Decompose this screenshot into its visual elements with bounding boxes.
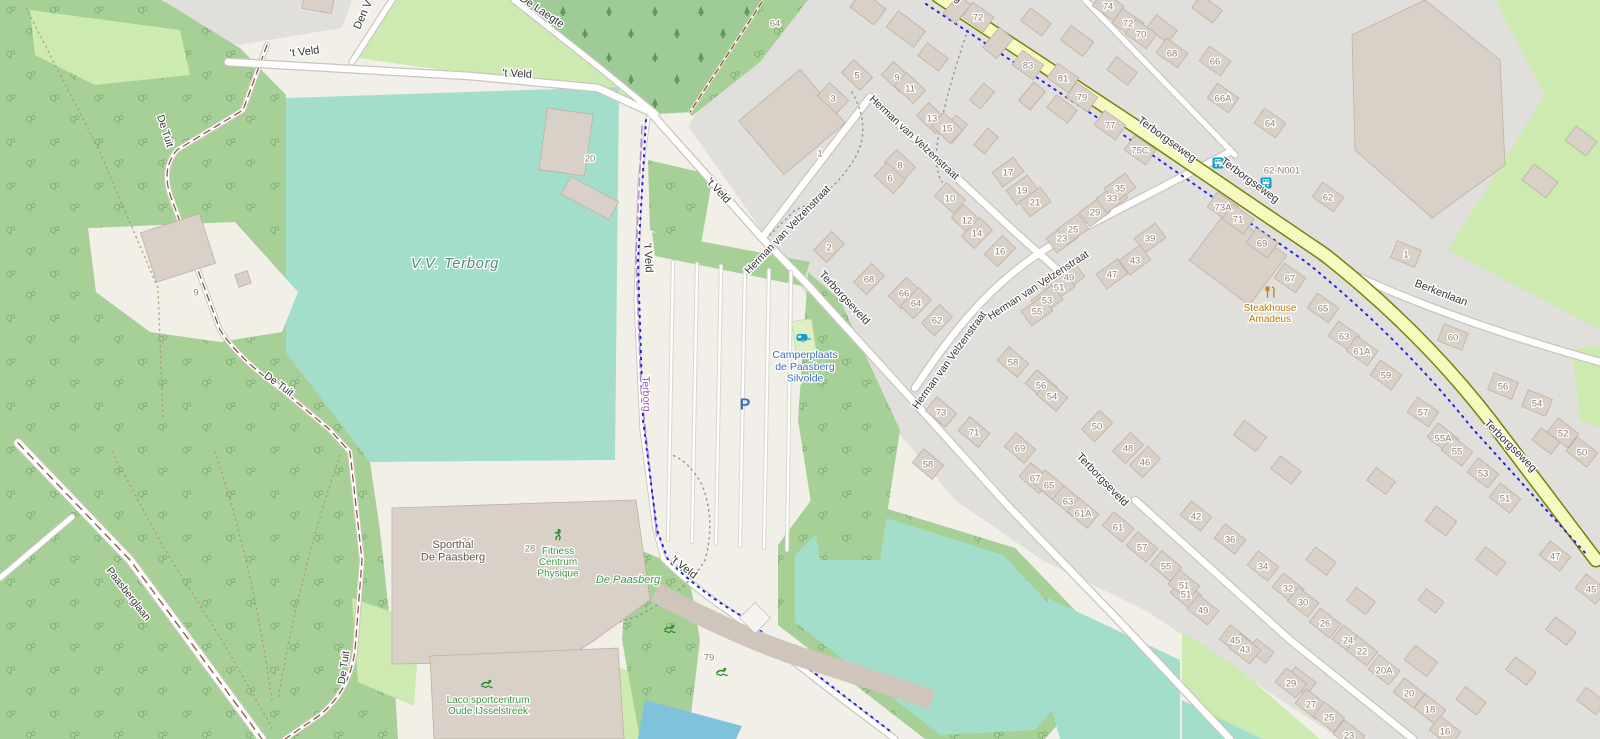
house-number: 58 [1008,357,1019,368]
house-number: 51 [1179,580,1190,591]
house-number: 64 [1265,118,1276,129]
house-number: 18 [1425,704,1436,715]
house-number: 60 [1448,332,1459,343]
place-label: De Paasberg [596,574,661,586]
house-number: 74 [1103,1,1114,12]
house-number: 52 [1558,428,1569,439]
house-number: 10 [945,193,956,204]
house-number: 55 [1032,306,1043,317]
parking-icon: P [740,397,751,414]
house-number: 75C [1131,145,1149,156]
house-number: 71 [1233,214,1244,225]
house-number: 43 [1130,255,1141,266]
house-number: 25 [1324,712,1335,723]
house-number: 39 [1145,233,1156,244]
building [539,108,593,176]
house-number: 16 [1440,726,1451,737]
house-number: 61A [1354,346,1372,357]
house-number: 27 [1306,699,1317,710]
house-number: 17 [1003,167,1014,178]
house-number: 61A [1075,508,1093,519]
house-number: 56 [1036,380,1047,391]
house-number: 48 [1123,443,1134,454]
house-number: 29 [1090,207,1101,218]
house-number: 28 [525,543,536,554]
street-label: 't Veld [641,243,655,273]
house-number: 56 [1498,381,1509,392]
house-number: 59 [1381,370,1392,381]
house-number: 23 [1057,233,1068,244]
house-number: 53 [1478,468,1489,479]
house-number: 73 [936,407,947,418]
house-number: 26 [1320,618,1331,629]
house-number: 16 [995,246,1006,257]
house-number: 50 [1092,421,1103,432]
house-number: 65 [1318,303,1329,314]
map-canvas[interactable]: P 6474727270686666A6462-N0016273A7183817… [0,0,1600,739]
house-number: 13 [927,113,938,124]
house-number: 57 [1418,407,1429,418]
house-number: 77 [1105,120,1116,131]
house-number: 53 [1042,295,1053,306]
house-number: 30 [1298,597,1309,608]
house-number: 70 [1136,29,1147,40]
house-number: 61 [1113,522,1124,533]
house-number: 11 [905,83,915,94]
house-number: 55 [1452,446,1463,457]
house-number: 20 [585,153,596,164]
house-number: 29 [1286,678,1297,689]
house-number: 72 [973,12,984,23]
house-number: 3 [830,93,835,104]
house-number: 14 [972,228,983,239]
place-label: Laco sportcentrumOude IJsselstreek [447,695,530,717]
house-number: 42 [1191,511,1202,522]
house-number: 33 [1107,193,1118,204]
house-number: 71 [969,427,980,438]
house-number: 55A [1435,433,1453,444]
place-label: Terborg [639,376,652,412]
house-number: 21 [1030,197,1041,208]
house-number: 5 [854,70,859,81]
house-number: 62 [932,315,943,326]
house-number: 34 [1258,561,1269,572]
house-number: 36 [1225,534,1236,545]
house-number: 22 [1357,646,1368,657]
house-number: 2 [826,242,831,253]
house-number: 62-N001 [1264,165,1300,176]
house-number: 9 [193,287,198,298]
house-number: 69 [1015,443,1026,454]
building-laco [430,648,624,739]
house-number: 50 [1577,447,1588,458]
house-number: 73A [1215,202,1233,213]
house-number: 12 [962,215,973,226]
house-number: 68 [1167,48,1178,59]
house-number: 67 [1030,473,1041,484]
house-number: 51 [1054,282,1065,293]
house-number: 46 [1140,457,1151,468]
house-number: 45 [1230,635,1241,646]
house-number: 72 [1123,18,1134,29]
house-number: 79 [1077,92,1088,103]
house-number: 25 [1068,224,1079,235]
house-number: 32 [1283,583,1294,594]
house-number: 6 [887,173,892,184]
house-number: 63 [1063,496,1074,507]
house-number: 65 [1044,480,1055,491]
place-label: V.V. Terborg [411,256,499,272]
house-number: 54 [1047,391,1058,402]
house-number: 20A [1376,665,1394,676]
house-number: 49 [1198,605,1209,616]
house-number: 66A [1215,93,1233,104]
street-label: 't Veld [502,67,532,81]
house-number: 83 [1023,60,1034,71]
house-number: 64 [770,18,781,29]
house-number: 20 [1404,688,1415,699]
house-number: 54 [1532,398,1543,409]
house-number: 47 [1550,551,1561,562]
house-number: 15 [942,123,953,134]
house-number: 23 [1344,730,1355,739]
place-label: SteakhouseAmadeus [1244,303,1297,325]
house-number: 35 [1115,183,1126,194]
house-number: 67 [1285,273,1296,284]
house-number: 1 [817,148,822,159]
house-number: 55 [1161,561,1172,572]
house-number: 24 [1343,635,1354,646]
house-number: 43 [1240,644,1251,655]
house-number: 66 [1210,56,1221,67]
house-number: 57 [1137,542,1148,553]
house-number: 19 [1017,185,1028,196]
house-number: 68 [864,274,875,285]
house-number: 79 [704,652,715,663]
house-number: 8 [897,160,902,171]
house-number: 62 [1323,192,1334,203]
house-number: 63 [1339,331,1350,342]
house-number: 9 [894,72,899,83]
house-number: 58 [923,459,934,470]
svg-text:P: P [740,397,751,414]
house-number: 47 [1107,269,1118,280]
house-number: 69 [1257,238,1268,249]
house-number: 51 [1500,493,1511,504]
house-number: 1 [1403,249,1408,260]
house-number: 45 [1586,584,1597,595]
house-number: 81 [1058,73,1069,84]
map-svg: P 6474727270686666A6462-N0016273A7183817… [0,0,1600,739]
house-number: 66 [899,288,910,299]
place-label: FitnessCentrumPhysique [537,546,579,579]
house-number: 64 [911,298,922,309]
